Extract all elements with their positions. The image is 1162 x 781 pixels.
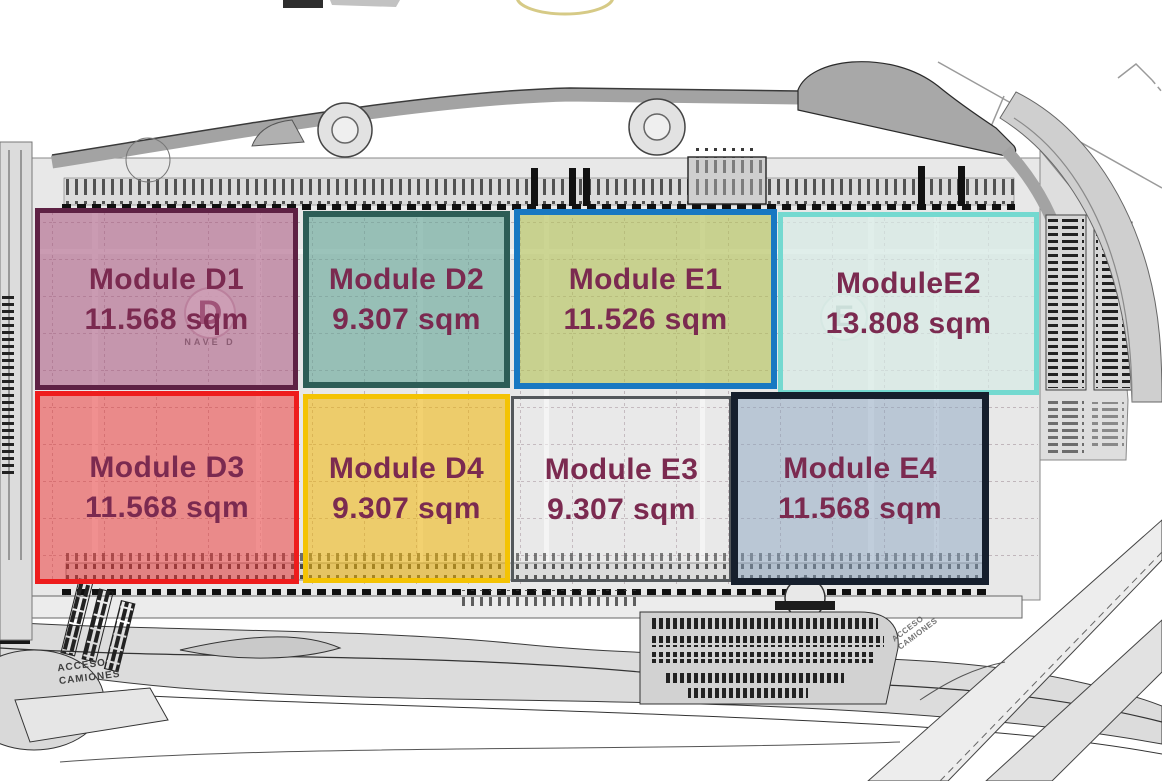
module-d2-name: Module D2	[329, 263, 484, 296]
module-e2-region[interactable]: ModuleE2 13.808 sqm	[778, 212, 1039, 395]
dock-strip-top	[60, 148, 1015, 211]
parking-south	[640, 612, 898, 704]
module-d1-area: 11.568 sqm	[84, 303, 248, 336]
module-e2-name: ModuleE2	[836, 267, 981, 300]
module-e1-region[interactable]: Module E1 11.526 sqm	[514, 209, 777, 389]
module-d4-name: Module D4	[329, 452, 484, 485]
module-d4-region[interactable]: Module D4 9.307 sqm	[303, 394, 510, 583]
module-d3-area: 11.568 sqm	[85, 491, 249, 524]
module-e4-region[interactable]: Module E4 11.568 sqm	[731, 392, 989, 585]
module-d1-region[interactable]: Module D1 11.568 sqm	[35, 208, 298, 390]
module-d1-name: Module D1	[89, 263, 244, 296]
top-road-hump	[798, 62, 1016, 157]
west-road-strip	[0, 142, 32, 640]
roundabout-west	[318, 103, 372, 157]
module-e3-name: Module E3	[545, 453, 699, 486]
module-e3-area: 9.307 sqm	[547, 493, 696, 526]
module-d3-name: Module D3	[89, 451, 244, 484]
yellow-arc-marking	[517, 0, 613, 14]
module-e3-region[interactable]: Module E3 9.307 sqm	[511, 396, 732, 582]
module-e1-area: 11.526 sqm	[563, 303, 727, 336]
module-d2-region[interactable]: Module D2 9.307 sqm	[303, 211, 510, 388]
module-e2-area: 13.808 sqm	[826, 307, 992, 340]
module-e4-area: 11.568 sqm	[778, 492, 942, 525]
site-plan-screenshot: D NAVE D E ACCESO CAMIONES ACCESO CAMION…	[0, 0, 1162, 781]
module-e4-name: Module E4	[783, 452, 937, 485]
module-e1-name: Module E1	[569, 263, 723, 296]
module-d3-region[interactable]: Module D3 11.568 sqm	[35, 391, 299, 584]
module-d4-area: 9.307 sqm	[332, 492, 481, 525]
top-edge-fragments	[283, 0, 613, 14]
module-d2-area: 9.307 sqm	[332, 303, 481, 336]
